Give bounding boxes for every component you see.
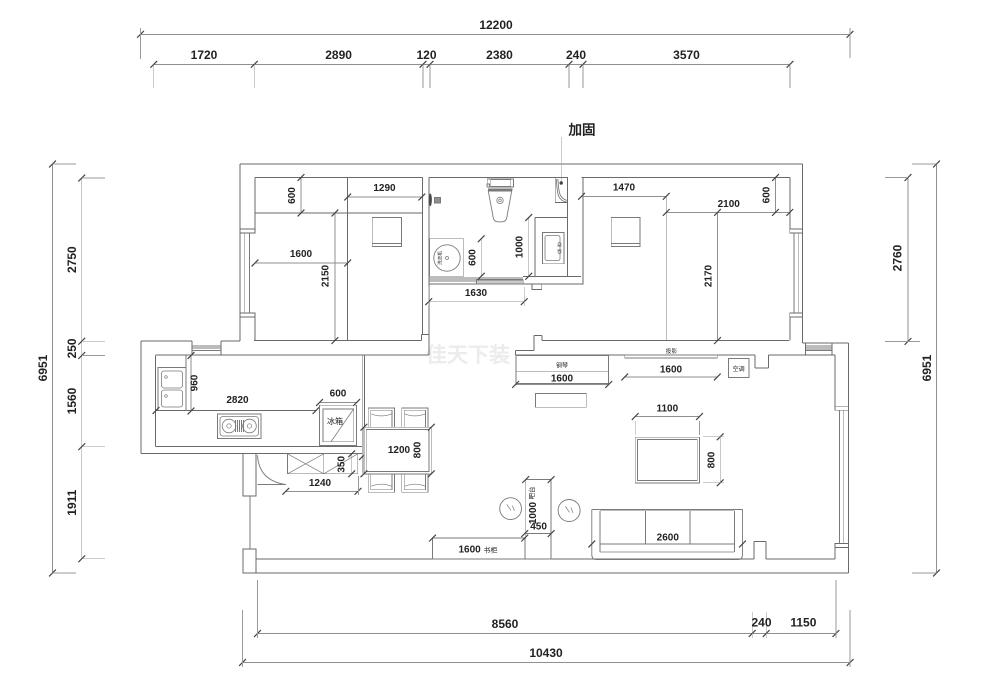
svg-text:洗衣机: 洗衣机: [437, 251, 444, 265]
svg-text:240: 240: [566, 48, 586, 62]
svg-text:2150: 2150: [321, 264, 332, 287]
svg-text:1150: 1150: [790, 616, 816, 630]
svg-text:450: 450: [530, 522, 547, 533]
svg-text:1630: 1630: [465, 288, 488, 299]
svg-text:600: 600: [762, 186, 773, 203]
svg-text:2170: 2170: [704, 264, 715, 287]
svg-text:吧台: 吧台: [527, 487, 536, 500]
svg-text:1560: 1560: [65, 387, 79, 414]
svg-text:800: 800: [707, 451, 718, 468]
svg-text:1240: 1240: [309, 478, 332, 489]
svg-text:2100: 2100: [718, 199, 741, 210]
svg-text:6951: 6951: [920, 354, 934, 381]
svg-text:600: 600: [468, 249, 479, 266]
svg-text:佳天下装: 佳天下装: [426, 344, 510, 367]
svg-text:1000: 1000: [515, 235, 526, 258]
svg-text:350: 350: [337, 456, 348, 473]
svg-text:1470: 1470: [613, 182, 636, 193]
svg-text:250: 250: [65, 338, 79, 358]
svg-text:600: 600: [330, 389, 347, 400]
svg-text:800: 800: [412, 441, 423, 458]
svg-text:1290: 1290: [373, 183, 396, 194]
svg-text:10430: 10430: [529, 646, 563, 660]
svg-text:1600: 1600: [551, 373, 574, 384]
svg-text:2750: 2750: [65, 246, 79, 273]
svg-text:1600: 1600: [660, 365, 683, 376]
svg-text:加固: 加固: [568, 123, 596, 138]
svg-text:120: 120: [416, 48, 436, 62]
svg-text:2380: 2380: [486, 48, 513, 62]
svg-text:1200: 1200: [388, 445, 411, 456]
svg-text:钢琴: 钢琴: [556, 362, 568, 370]
svg-text:8560: 8560: [492, 617, 519, 631]
svg-text:投影: 投影: [666, 347, 678, 355]
svg-text:2890: 2890: [325, 48, 352, 62]
svg-text:960: 960: [190, 374, 201, 391]
svg-text:冰箱: 冰箱: [327, 416, 343, 426]
svg-text:1600: 1600: [290, 249, 313, 260]
svg-text:2600: 2600: [657, 533, 680, 544]
svg-text:240: 240: [751, 616, 771, 630]
svg-text:2820: 2820: [226, 395, 249, 406]
svg-text:6951: 6951: [36, 354, 50, 381]
svg-text:12200: 12200: [479, 18, 513, 32]
svg-text:3570: 3570: [673, 48, 700, 62]
svg-text:1911: 1911: [65, 489, 79, 515]
svg-text:空调: 空调: [733, 365, 745, 373]
svg-text:1100: 1100: [656, 404, 678, 415]
svg-text:2760: 2760: [891, 244, 905, 271]
svg-text:1720: 1720: [191, 48, 218, 62]
svg-text:600: 600: [287, 187, 298, 204]
